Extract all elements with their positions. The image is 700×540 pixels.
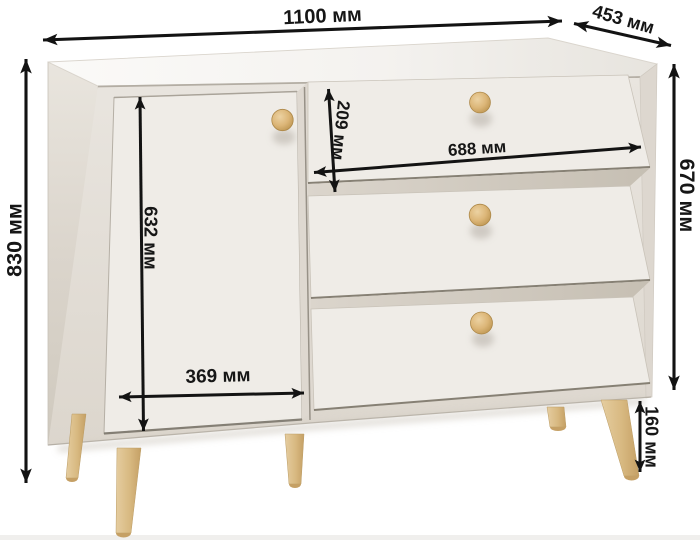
svg-text:160 мм: 160 мм — [642, 406, 662, 468]
svg-text:632 мм: 632 мм — [141, 206, 162, 269]
svg-text:369 мм: 369 мм — [185, 365, 251, 388]
svg-text:688 мм: 688 мм — [447, 137, 506, 160]
svg-text:830 мм: 830 мм — [3, 203, 27, 277]
svg-text:670 мм: 670 мм — [675, 159, 699, 233]
svg-text:1100 мм: 1100 мм — [283, 4, 362, 29]
